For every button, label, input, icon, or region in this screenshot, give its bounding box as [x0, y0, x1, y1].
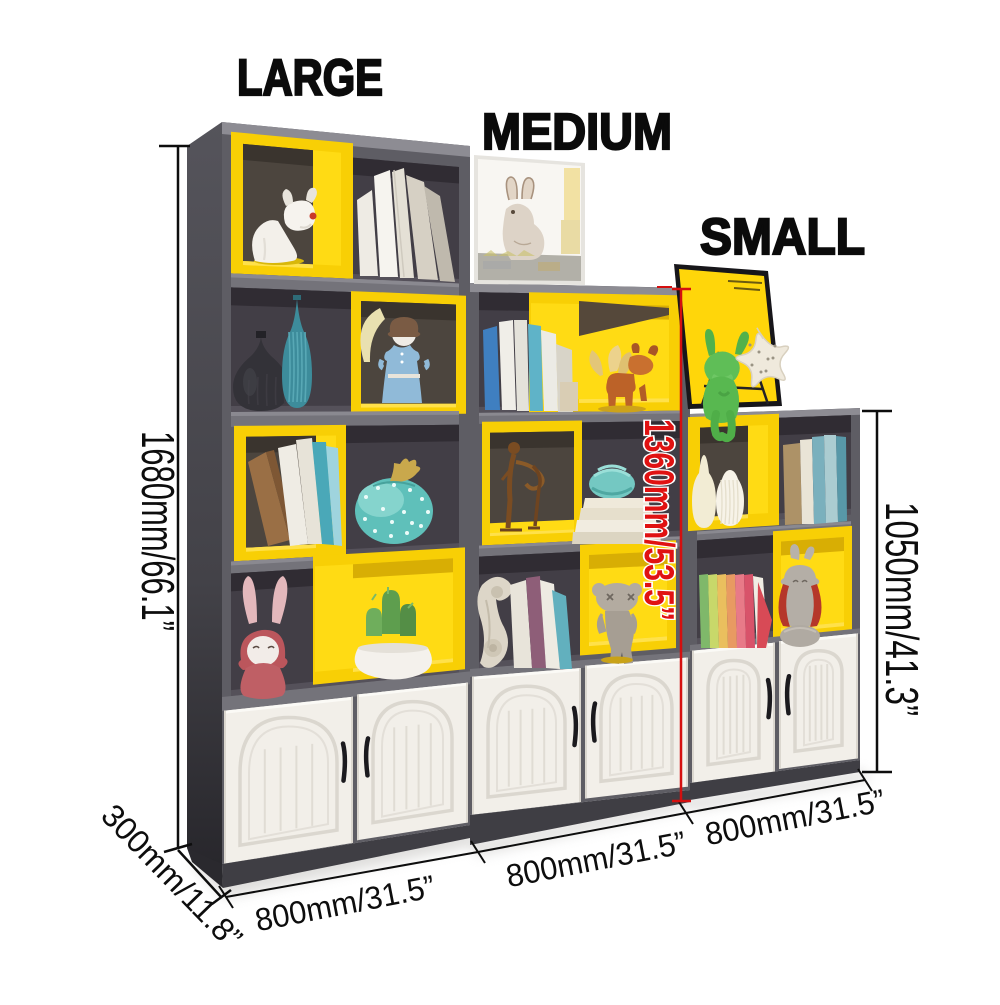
- svg-text:MEDIUM: MEDIUM: [482, 103, 672, 160]
- svg-text:1050mm/41.3”: 1050mm/41.3”: [876, 502, 928, 716]
- svg-text:1360mm/53.5”: 1360mm/53.5”: [636, 419, 683, 621]
- svg-text:1680mm/66.1”: 1680mm/66.1”: [132, 431, 184, 631]
- svg-text:SMALL: SMALL: [700, 208, 865, 265]
- svg-text:LARGE: LARGE: [237, 49, 383, 106]
